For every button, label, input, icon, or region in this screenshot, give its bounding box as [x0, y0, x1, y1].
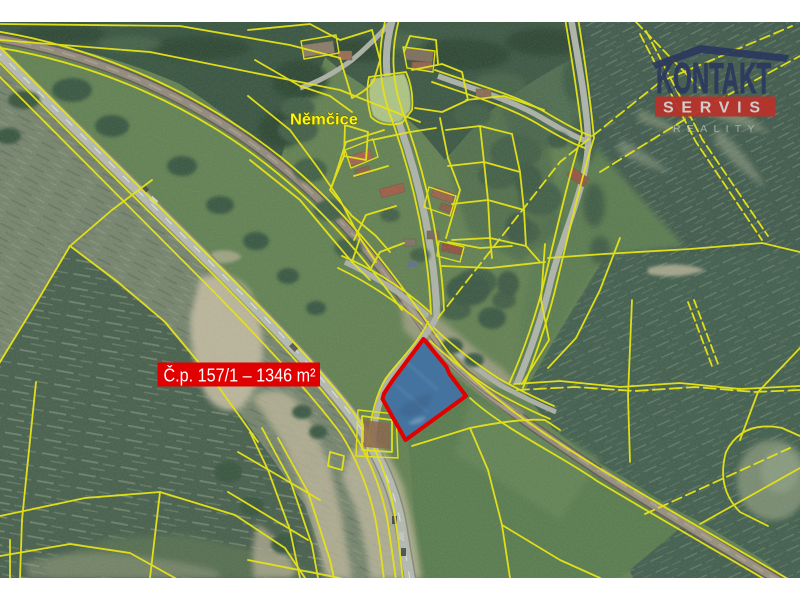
svg-text:KONTAKT: KONTAKT: [656, 54, 771, 103]
svg-text:REALITY: REALITY: [673, 123, 761, 135]
svg-text:Němčice: Němčice: [290, 112, 358, 129]
svg-text:Č.p. 157/1 – 1346 m²: Č.p. 157/1 – 1346 m²: [164, 365, 316, 386]
svg-text:SERVIS: SERVIS: [663, 100, 767, 117]
